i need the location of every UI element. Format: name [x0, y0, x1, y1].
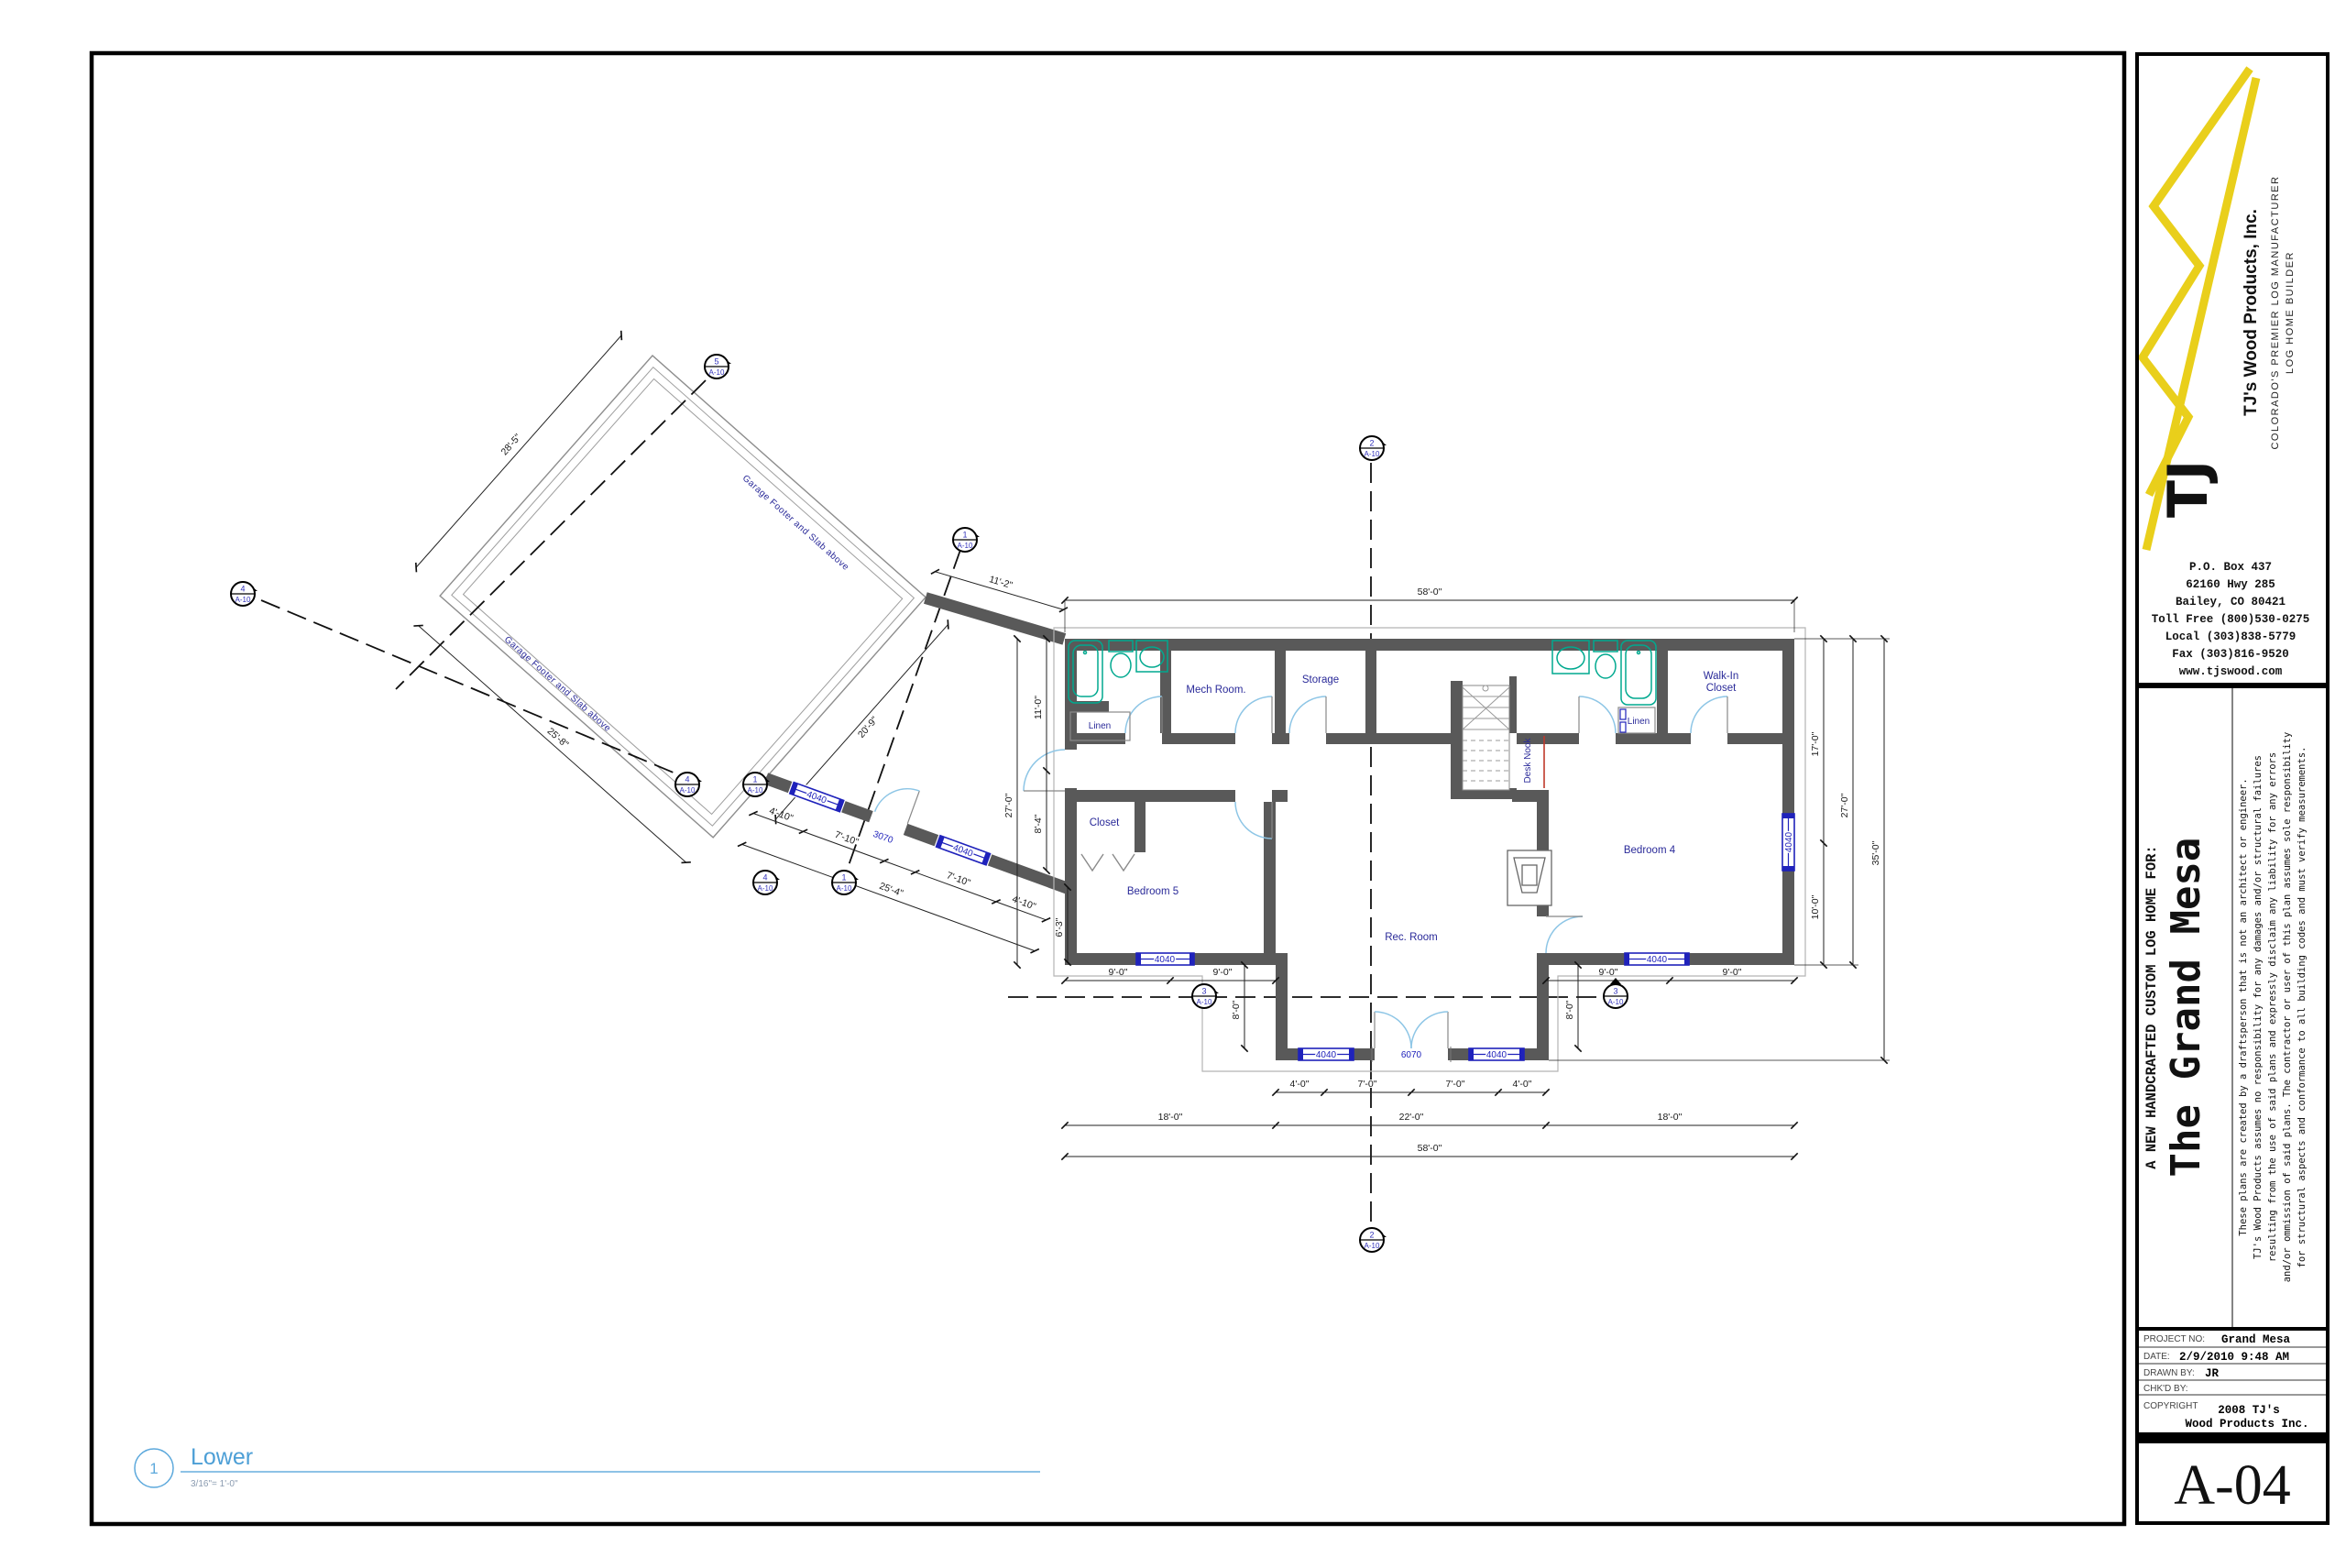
field-date-value: 2/9/2010 9:48 AM — [2179, 1351, 2289, 1364]
svg-text:A-10: A-10 — [1365, 450, 1380, 458]
field-chkd-label: CHK'D BY: — [2143, 1384, 2188, 1394]
dimension-texts: 58'-0" 9'-0" 9'-0" 9'-0" 9'-0" 8'-0" 8'-… — [1003, 587, 1881, 1154]
svg-text:and/or ommission of said plans: and/or ommission of said plans. The cont… — [2282, 732, 2293, 1283]
room-linen-1: Linen — [1089, 721, 1111, 731]
svg-text:P.O. Box 437: P.O. Box 437 — [2189, 561, 2272, 574]
sheet: Garage Footer and Slab above Garage Foot… — [0, 0, 2346, 1563]
sheet-number: A-04 — [2174, 1454, 2290, 1517]
svg-text:Toll Free (800)530-0275: Toll Free (800)530-0275 — [2152, 613, 2310, 626]
dim-garage-se: 20'-9" — [856, 715, 881, 740]
field-project-value: Grand Mesa — [2221, 1333, 2291, 1346]
field-drawn-label: DRAWN BY: — [2143, 1368, 2195, 1378]
svg-text:4040: 4040 — [1155, 955, 1176, 965]
svg-text:Fax (303)816-9520: Fax (303)816-9520 — [2172, 648, 2289, 661]
bifold-door-icon — [1081, 854, 1103, 871]
view-name: Lower — [191, 1444, 253, 1470]
svg-text:9'-0": 9'-0" — [1109, 967, 1128, 978]
room-linen-2: Linen — [1628, 717, 1650, 727]
svg-text:These plans are created by a d: These plans are created by a draftsperso… — [2238, 778, 2249, 1235]
svg-text:58'-0": 58'-0" — [1418, 1143, 1442, 1154]
svg-text:4'-0": 4'-0" — [1513, 1079, 1532, 1090]
svg-text:4: 4 — [240, 585, 245, 594]
room-storage: Storage — [1302, 674, 1339, 685]
wing-lower-wall: 4040 3070 4040 4'-10" 7'-10" 7'-10" 4'-1… — [742, 740, 1083, 955]
field-copyright-value-1: 2008 TJ's — [2218, 1404, 2280, 1417]
drawing-border — [92, 53, 2124, 1524]
svg-text:A-10: A-10 — [1365, 1242, 1380, 1250]
svg-text:1: 1 — [752, 775, 757, 784]
svg-text:A-10: A-10 — [958, 542, 973, 550]
svg-text:1: 1 — [962, 531, 967, 540]
project-info: PROJECT NO: Grand Mesa DATE: 2/9/2010 9:… — [2139, 1333, 2326, 1431]
title-block: TJ TJ's Wood Products, Inc. COLORADO'S P… — [2135, 52, 2330, 1525]
closet-details — [1070, 707, 1655, 871]
svg-text:3: 3 — [1613, 987, 1617, 996]
room-labels: Mech Room. Storage Walk-In Closet Linen … — [1089, 671, 1739, 943]
window-bump-left: 4040 — [1299, 1048, 1354, 1060]
view-scale: 3/16"= 1'-0" — [191, 1479, 238, 1489]
section-lines — [261, 380, 1604, 1228]
field-date-label: DATE: — [2143, 1352, 2170, 1362]
svg-text:A-10: A-10 — [236, 596, 251, 604]
svg-text:1: 1 — [841, 873, 846, 883]
wing-upper-wall: 11'-2" — [924, 558, 1076, 645]
svg-text:18'-0": 18'-0" — [1658, 1112, 1683, 1123]
svg-text:for structural aspects and con: for structural aspects and conformance t… — [2297, 747, 2308, 1268]
dim-garage-nw: 28'-5" — [499, 432, 523, 457]
svg-text:10'-0": 10'-0" — [1810, 894, 1821, 919]
svg-text:2: 2 — [1369, 439, 1374, 448]
svg-text:5: 5 — [714, 357, 718, 367]
svg-text:A-10: A-10 — [709, 368, 725, 377]
project-header: A NEW HANDCRAFTED CUSTOM LOG HOME FOR: — [2143, 845, 2160, 1168]
svg-text:2: 2 — [1369, 1231, 1374, 1240]
dim-wing-2: 7'-10" — [833, 829, 860, 849]
disclaimer: These plans are created by a draftsperso… — [2238, 732, 2308, 1283]
fireplace — [1507, 850, 1551, 905]
company-logo: TJ TJ's Wood Products, Inc. COLORADO'S P… — [2143, 69, 2296, 550]
room-closet: Closet — [1090, 817, 1120, 828]
svg-text:Local (303)838-5779: Local (303)838-5779 — [2165, 630, 2297, 643]
svg-text:18'-0": 18'-0" — [1158, 1112, 1183, 1123]
company-name: TJ's Wood Products, Inc. — [2242, 209, 2261, 416]
dim-garage-sw: 25'-8" — [545, 726, 571, 751]
dim-wing-total: 25'-4" — [878, 881, 904, 900]
svg-text:4: 4 — [762, 873, 767, 883]
dim-wing-3: 7'-10" — [945, 870, 971, 889]
svg-text:9'-0": 9'-0" — [1599, 967, 1618, 978]
svg-text:58'-0": 58'-0" — [1418, 587, 1442, 598]
exterior-walls — [1065, 639, 1794, 1060]
svg-text:8'-0": 8'-0" — [1564, 1000, 1575, 1019]
svg-text:11'-0": 11'-0" — [1033, 696, 1044, 719]
dim-wing-4: 4'-10" — [1011, 894, 1037, 913]
svg-text:A-10: A-10 — [1608, 998, 1624, 1006]
svg-text:A-10: A-10 — [748, 786, 763, 795]
room-mech: Mech Room. — [1186, 685, 1245, 696]
garage-note-sw: Garage Footer and Slab above — [502, 635, 613, 735]
svg-text:4040: 4040 — [1316, 1050, 1337, 1060]
svg-text:6070: 6070 — [1401, 1050, 1422, 1060]
svg-text:8'-4": 8'-4" — [1033, 814, 1044, 833]
svg-text:www.tjswood.com: www.tjswood.com — [2179, 665, 2283, 678]
svg-text:27'-0": 27'-0" — [1839, 793, 1850, 817]
svg-text:4: 4 — [685, 775, 689, 784]
svg-text:4040: 4040 — [1784, 831, 1794, 852]
room-bed4: Bedroom 4 — [1624, 845, 1676, 856]
svg-text:4040: 4040 — [1647, 955, 1668, 965]
svg-text:4'-0": 4'-0" — [1290, 1079, 1310, 1090]
svg-text:17'-0": 17'-0" — [1810, 731, 1821, 756]
window-bed4-east: 4040 — [1782, 814, 1794, 871]
svg-text:9'-0": 9'-0" — [1213, 967, 1233, 978]
svg-text:Bailey, CO 80421: Bailey, CO 80421 — [2176, 596, 2286, 609]
svg-text:8'-0": 8'-0" — [1231, 1000, 1242, 1019]
interior-walls — [1065, 651, 1782, 953]
floor-plan-drawing: Garage Footer and Slab above Garage Foot… — [0, 0, 2346, 1563]
svg-text:4040: 4040 — [1486, 1050, 1507, 1060]
room-rec: Rec. Room — [1385, 932, 1438, 943]
title-block-content: TJ TJ's Wood Products, Inc. COLORADO'S P… — [2139, 56, 2326, 1521]
svg-text:7'-0": 7'-0" — [1358, 1079, 1377, 1090]
svg-text:9'-0": 9'-0" — [1723, 967, 1742, 978]
view-number: 1 — [149, 1460, 158, 1477]
svg-text:35'-0": 35'-0" — [1870, 840, 1881, 865]
room-wic-1: Walk-In — [1704, 671, 1739, 682]
svg-text:62160 Hwy 285: 62160 Hwy 285 — [2186, 578, 2275, 591]
svg-text:22'-0": 22'-0" — [1399, 1112, 1424, 1123]
garage-note-ne: Garage Footer and Slab above — [740, 474, 851, 574]
field-project-label: PROJECT NO: — [2143, 1334, 2205, 1344]
room-wic-2: Closet — [1706, 683, 1737, 694]
window-bed4-south: 4040 — [1625, 953, 1689, 965]
dim-wing-1: 4'-10" — [768, 806, 795, 825]
company-tagline-2: LOG HOME BUILDER — [2285, 251, 2296, 374]
field-copyright-value-2: Wood Products Inc. — [2185, 1418, 2308, 1431]
window-bed5: 4040 — [1136, 953, 1194, 965]
svg-text:TJ's Wood Products assumes no: TJ's Wood Products assumes no responsibi… — [2253, 755, 2264, 1259]
svg-text:7'-0": 7'-0" — [1446, 1079, 1465, 1090]
logo-monogram: TJ — [2156, 460, 2220, 518]
window-bump-right: 4040 — [1469, 1048, 1524, 1060]
svg-text:3: 3 — [1201, 987, 1206, 996]
company-tagline-1: COLORADO'S PREMIER LOG MANUFACTURER — [2270, 175, 2281, 449]
stairs — [1463, 685, 1509, 790]
svg-text:A-10: A-10 — [758, 884, 773, 893]
svg-text:6'-3": 6'-3" — [1054, 917, 1065, 937]
svg-text:A-10: A-10 — [680, 786, 696, 795]
project-name: The Grand Mesa — [2163, 838, 2209, 1178]
svg-text:A-10: A-10 — [837, 884, 852, 893]
logo-zigzag — [2143, 69, 2250, 495]
company-address: P.O. Box 437 62160 Hwy 285 Bailey, CO 80… — [2152, 561, 2310, 678]
field-copyright-label: COPYRIGHT — [2143, 1401, 2198, 1411]
bifold-door-icon — [1113, 854, 1135, 871]
room-nook: Desk Nook — [1523, 738, 1533, 784]
svg-text:A-10: A-10 — [1197, 998, 1212, 1006]
room-bed5: Bedroom 5 — [1127, 886, 1178, 897]
svg-text:27'-0": 27'-0" — [1003, 793, 1014, 817]
view-title: 1 Lower 3/16"= 1'-0" — [135, 1444, 1040, 1489]
svg-text:resulting from the use of said: resulting from the use of said plans and… — [2267, 752, 2278, 1262]
field-drawn-value: JR — [2205, 1367, 2220, 1380]
windows: 4040 4040 4040 4040 4040 — [1136, 814, 1794, 1062]
